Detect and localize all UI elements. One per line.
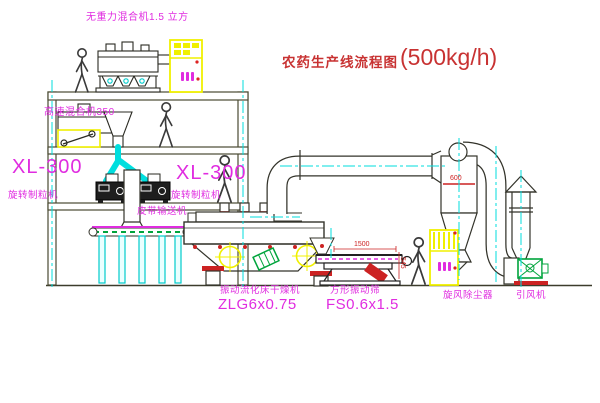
- sieve-feed-hopper: [310, 238, 334, 254]
- belt-conveyor: [89, 227, 191, 283]
- label-fan: 引风机: [516, 291, 546, 301]
- label-sieve-name: 方形振动筛: [330, 286, 380, 296]
- label-dryer-name: 振动流化床干燥机: [220, 286, 300, 296]
- rotary-granulator-left: [96, 174, 128, 203]
- dim-sieve-length: 1500: [354, 241, 370, 248]
- label-sieve-model: FS0.6x1.5: [326, 297, 399, 312]
- worker-figure-floor2: [160, 103, 173, 147]
- worker-figure-ground: [412, 238, 425, 284]
- title-text: 农药生产线流程图: [282, 45, 398, 71]
- square-vibrating-sieve: [316, 246, 412, 285]
- dim-sieve-height: 545: [399, 257, 406, 269]
- page-title: 农药生产线流程图 (500kg/h): [282, 44, 497, 71]
- induced-draft-fan: [504, 258, 548, 285]
- dryer-green-cylinder: [253, 248, 279, 270]
- title-capacity: (500kg/h): [400, 44, 497, 71]
- dim-cyclone-inlet: 600: [450, 175, 462, 182]
- flow-diagram-page: 农药生产线流程图 (500kg/h) 无重力混合机1.5 立方 高速混合机350…: [0, 0, 600, 403]
- worker-figure-roof: [76, 49, 89, 92]
- roof-dust-filter-cabinet: [170, 40, 202, 92]
- label-granulator-left-name: 旋转制粒机: [8, 191, 58, 201]
- label-belt-conveyor: 皮带输送机: [137, 207, 187, 217]
- label-high-speed-mixer: 高速混合机350: [44, 108, 115, 118]
- label-dryer-model: ZLG6x0.75: [218, 297, 297, 312]
- dryer-exhaust-duct: [277, 150, 441, 214]
- label-granulator-mid-name: 旋转制粒机: [171, 191, 221, 201]
- ground-control-cabinet: [430, 230, 458, 285]
- label-granulator-mid-model: XL-300: [176, 163, 247, 183]
- label-granulator-left-model: XL-300: [12, 157, 83, 177]
- label-gravity-free-mixer: 无重力混合机1.5 立方: [86, 13, 189, 23]
- mixer-drive-belt-guard: [58, 130, 100, 147]
- label-cyclone: 旋风除尘器: [443, 291, 493, 301]
- fluid-bed-dryer: [184, 203, 332, 286]
- gravity-free-mixer: [96, 42, 170, 92]
